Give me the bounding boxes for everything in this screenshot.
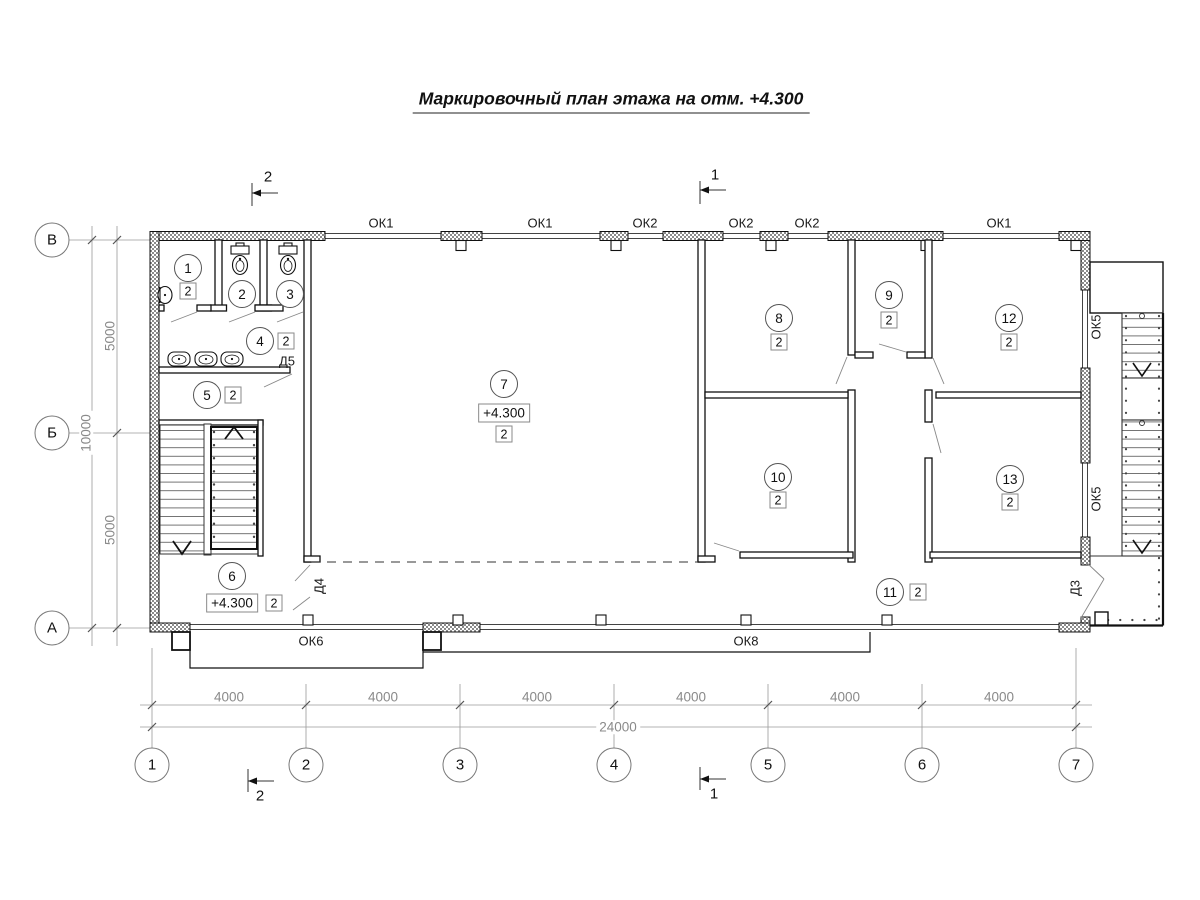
room-number-1: 1 [174,254,202,282]
section-label-1-top: 1 [711,168,719,183]
window-mark-ok1-c: ОК1 [987,217,1012,230]
sink-fixtures [168,352,243,366]
door-mark-d3: Д3 [1069,580,1082,596]
window-mark-ok2-c: ОК2 [795,217,820,230]
dim-bottom-span-1: 4000 [214,690,244,704]
room-number-5: 5 [193,381,221,409]
dim-bottom-span-4: 4000 [676,690,706,704]
axis-row-B: Б [35,416,70,451]
window-mark-ok1-b: ОК1 [528,217,553,230]
room-number-12: 12 [995,304,1023,332]
dim-bottom-span-2: 4000 [368,690,398,704]
room-type-4: 2 [278,333,295,350]
window-mark-ok6: ОК6 [299,635,324,648]
section-label-1-bottom: 1 [710,787,718,802]
room-number-4: 4 [246,327,274,355]
room-type-8: 2 [771,334,788,351]
room-type-7: 2 [496,426,513,443]
room-type-13: 2 [1002,494,1019,511]
room-number-13: 13 [996,465,1024,493]
axis-col-7: 7 [1059,748,1094,783]
door-mark-d4: Д4 [313,578,326,594]
room-number-10: 10 [764,463,792,491]
room-elevation-7: +4.300 [478,404,530,423]
dim-left-total: 10000 [79,411,93,455]
door-mark-d5: Д5 [279,355,295,368]
axis-col-2: 2 [289,748,324,783]
section-label-2-bottom: 2 [256,789,264,804]
window-mark-ok2-b: ОК2 [729,217,754,230]
window-mark-ok8: ОК8 [734,635,759,648]
room-type-12: 2 [1001,334,1018,351]
drawing-title: Маркировочный план этажа на отм. +4.300 [413,89,810,114]
window-mark-ok2-a: ОК2 [633,217,658,230]
axis-col-1: 1 [135,748,170,783]
axis-col-6: 6 [905,748,940,783]
axis-col-3: 3 [443,748,478,783]
room-elevation-6: +4.300 [206,594,258,613]
room-type-6: 2 [266,595,283,612]
section-label-2-top: 2 [264,170,272,185]
dim-bottom-total: 24000 [596,720,640,734]
stair-interior [159,424,258,555]
room-number-11: 11 [876,578,904,606]
room-type-5: 2 [225,387,242,404]
axis-row-V: В [35,223,70,258]
room-number-8: 8 [765,304,793,332]
porch-terrace [172,632,870,668]
room-number-9: 9 [875,281,903,309]
section-marks [248,181,726,792]
dim-left-span-1: 5000 [103,321,117,351]
dim-bottom-span-6: 4000 [984,690,1014,704]
axis-col-4: 4 [597,748,632,783]
room-type-11: 2 [910,584,927,601]
room-number-2: 2 [228,280,256,308]
drawing-sheet: Маркировочный план этажа на отм. +4.300 … [0,0,1200,900]
window-mark-ok5-b: ОК5 [1090,487,1103,512]
dim-left-span-2: 5000 [103,515,117,545]
window-mark-ok1-a: ОК1 [369,217,394,230]
room-type-1: 2 [180,283,197,300]
room-type-9: 2 [881,312,898,329]
dim-bottom-span-5: 4000 [830,690,860,704]
axis-col-5: 5 [751,748,786,783]
room-number-6: 6 [218,562,246,590]
room-number-3: 3 [276,280,304,308]
room-number-7: 7 [490,370,518,398]
room-type-10: 2 [770,492,787,509]
dim-bottom-span-3: 4000 [522,690,552,704]
window-mark-ok5-a: ОК5 [1090,315,1103,340]
axis-row-A: А [35,611,70,646]
wall-pier-tabs [303,241,1081,626]
